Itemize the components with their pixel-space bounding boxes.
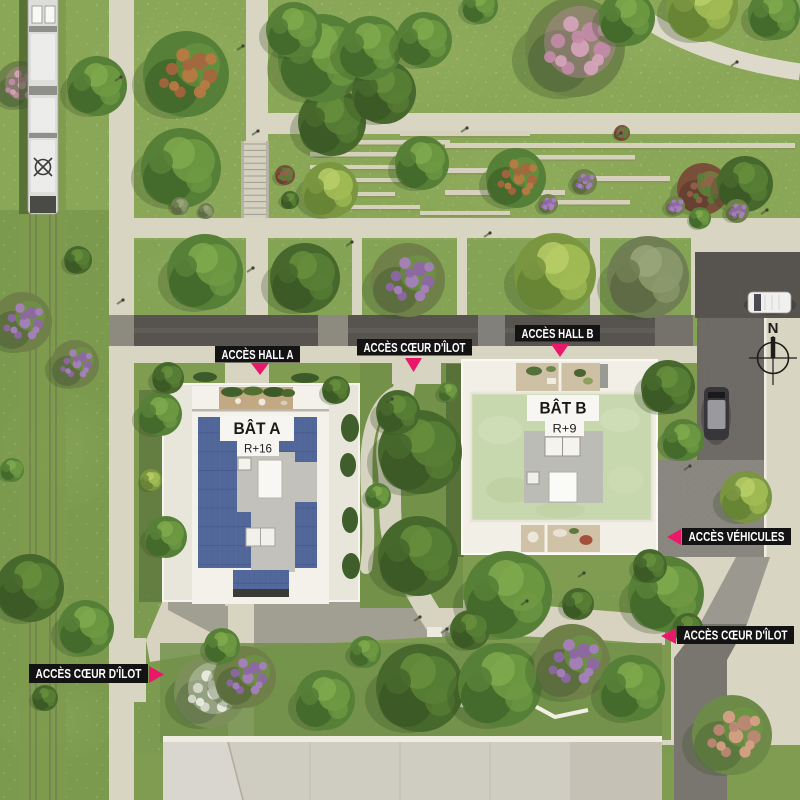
svg-text:R+16: R+16: [244, 442, 272, 456]
svg-text:ACCÈS HALL A: ACCÈS HALL A: [222, 347, 294, 362]
svg-text:ACCÈS HALL B: ACCÈS HALL B: [522, 326, 594, 341]
svg-text:ACCÈS CŒUR D'ÎLOT: ACCÈS CŒUR D'ÎLOT: [364, 340, 466, 355]
svg-text:ACCÈS CŒUR D'ÎLOT: ACCÈS CŒUR D'ÎLOT: [684, 628, 788, 643]
svg-text:N: N: [768, 320, 779, 337]
svg-text:BÂT B: BÂT B: [540, 399, 587, 418]
svg-text:R+9: R+9: [553, 422, 577, 436]
svg-text:ACCÈS CŒUR D'ÎLOT: ACCÈS CŒUR D'ÎLOT: [36, 666, 142, 681]
svg-text:ACCÈS VÉHICULES: ACCÈS VÉHICULES: [689, 529, 785, 544]
svg-text:BÂT A: BÂT A: [234, 419, 281, 438]
